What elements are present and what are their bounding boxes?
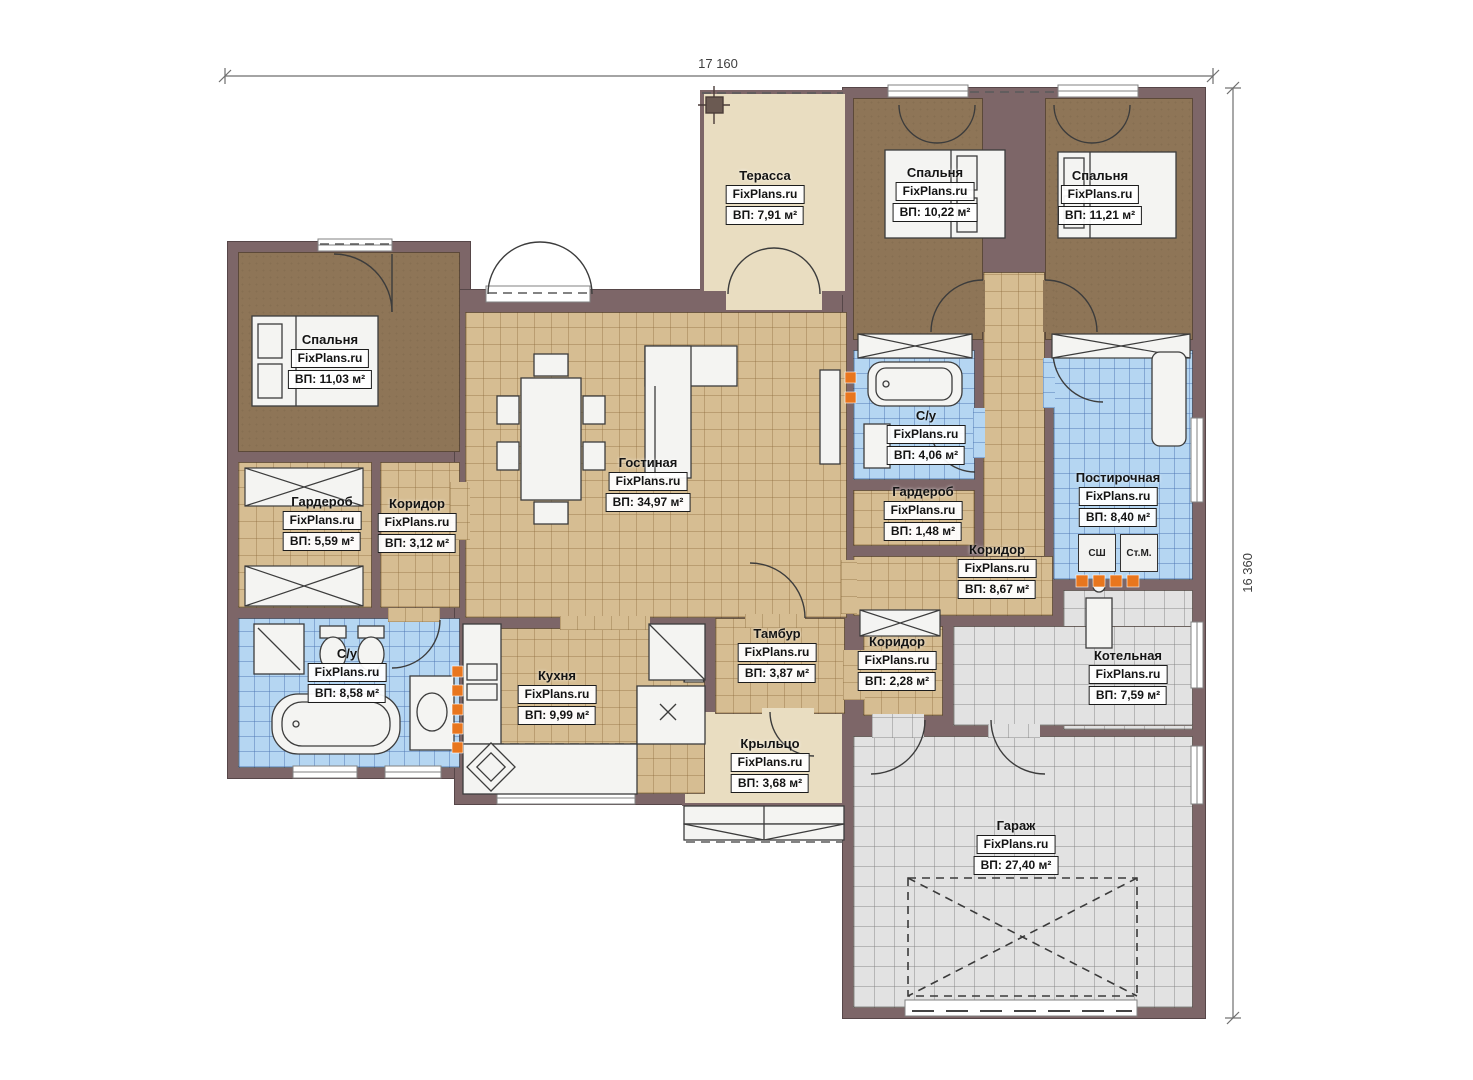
area-box: ВП: 1,48 м² [884, 522, 962, 541]
brand-box: FixPlans.ru [887, 425, 966, 444]
room-name: С/у [916, 408, 936, 423]
room-label-bathroom-small: С/у FixPlans.ru ВП: 4,06 м² [887, 408, 966, 465]
room-label-bathroom-big: С/у FixPlans.ru ВП: 8,58 м² [308, 646, 387, 703]
area-box: ВП: 8,67 м² [958, 580, 1036, 599]
area-box: ВП: 3,68 м² [731, 774, 809, 793]
area-box: ВП: 3,12 м² [378, 534, 456, 553]
brand-box: FixPlans.ru [977, 835, 1056, 854]
room-name: Крыльцо [740, 736, 799, 751]
area-box: ВП: 7,59 м² [1089, 686, 1167, 705]
room-name: Коридор [969, 542, 1025, 557]
dimension-width-label: 17 160 [698, 56, 738, 71]
brand-box: FixPlans.ru [738, 643, 817, 662]
room-label-garage: Гараж FixPlans.ru ВП: 27,40 м² [974, 818, 1059, 875]
room-name: Коридор [869, 634, 925, 649]
room-name: Гараж [997, 818, 1036, 833]
area-box: ВП: 8,58 м² [308, 684, 386, 703]
room-name: Тамбур [753, 626, 800, 641]
room-name: Гардероб [892, 484, 953, 499]
dryer-box: СШ [1078, 534, 1116, 572]
room-label-wardrobe-left: Гардероб FixPlans.ru ВП: 5,59 м² [283, 494, 362, 551]
room-name: Спальня [907, 165, 963, 180]
room-label-living: Гостиная FixPlans.ru ВП: 34,97 м² [606, 455, 691, 512]
room-name: Гардероб [291, 494, 352, 509]
room-name: Спальня [302, 332, 358, 347]
room-name: Спальня [1072, 168, 1128, 183]
room-name: Постирочная [1076, 470, 1160, 485]
brand-box: FixPlans.ru [858, 651, 937, 670]
room-name: Котельная [1094, 648, 1162, 663]
brand-box: FixPlans.ru [896, 182, 975, 201]
area-box: ВП: 7,91 м² [726, 206, 804, 225]
room-name: Коридор [389, 496, 445, 511]
room-label-corridor-main: Коридор FixPlans.ru ВП: 8,67 м² [958, 542, 1037, 599]
brand-box: FixPlans.ru [958, 559, 1037, 578]
area-box: ВП: 9,99 м² [518, 706, 596, 725]
floor-plan: 17 160 16 360 СШ Ст.М. Терасса FixPlans.… [0, 0, 1473, 1080]
room-label-bedroom-right2: Спальня FixPlans.ru ВП: 11,21 м² [1058, 168, 1142, 225]
room-label-corridor-left: Коридор FixPlans.ru ВП: 3,12 м² [378, 496, 457, 553]
room-name: Терасса [739, 168, 791, 183]
area-box: ВП: 5,59 м² [283, 532, 361, 551]
brand-box: FixPlans.ru [884, 501, 963, 520]
area-box: ВП: 8,40 м² [1079, 508, 1157, 527]
room-label-corridor-entry: Коридор FixPlans.ru ВП: 2,28 м² [858, 634, 937, 691]
area-box: ВП: 4,06 м² [887, 446, 965, 465]
dimension-height-label: 16 360 [1240, 553, 1255, 593]
area-box: ВП: 27,40 м² [974, 856, 1059, 875]
brand-box: FixPlans.ru [1061, 185, 1140, 204]
plan-graphics [0, 0, 1473, 1080]
brand-box: FixPlans.ru [731, 753, 810, 772]
room-label-bedroom-left: Спальня FixPlans.ru ВП: 11,03 м² [288, 332, 372, 389]
brand-box: FixPlans.ru [291, 349, 370, 368]
room-name: Гостиная [619, 455, 678, 470]
room-label-wardrobe-small: Гардероб FixPlans.ru ВП: 1,48 м² [884, 484, 963, 541]
room-name: Кухня [538, 668, 576, 683]
room-label-kitchen: Кухня FixPlans.ru ВП: 9,99 м² [518, 668, 597, 725]
area-box: ВП: 11,03 м² [288, 370, 372, 389]
brand-box: FixPlans.ru [283, 511, 362, 530]
room-name: С/у [337, 646, 357, 661]
area-box: ВП: 34,97 м² [606, 493, 691, 512]
room-label-laundry: Постирочная FixPlans.ru ВП: 8,40 м² [1076, 470, 1160, 527]
room-label-boiler: Котельная FixPlans.ru ВП: 7,59 м² [1089, 648, 1168, 705]
brand-box: FixPlans.ru [308, 663, 387, 682]
room-label-bedroom-right1: Спальня FixPlans.ru ВП: 10,22 м² [893, 165, 978, 222]
brand-box: FixPlans.ru [378, 513, 457, 532]
area-box: ВП: 3,87 м² [738, 664, 816, 683]
brand-box: FixPlans.ru [518, 685, 597, 704]
brand-box: FixPlans.ru [1079, 487, 1158, 506]
brand-box: FixPlans.ru [609, 472, 688, 491]
room-label-porch: Крыльцо FixPlans.ru ВП: 3,68 м² [731, 736, 810, 793]
area-box: ВП: 11,21 м² [1058, 206, 1142, 225]
area-box: ВП: 10,22 м² [893, 203, 978, 222]
brand-box: FixPlans.ru [1089, 665, 1168, 684]
room-label-vestibule: Тамбур FixPlans.ru ВП: 3,87 м² [738, 626, 817, 683]
room-label-terrace: Терасса FixPlans.ru ВП: 7,91 м² [726, 168, 805, 225]
washer-box: Ст.М. [1120, 534, 1158, 572]
area-box: ВП: 2,28 м² [858, 672, 936, 691]
brand-box: FixPlans.ru [726, 185, 805, 204]
